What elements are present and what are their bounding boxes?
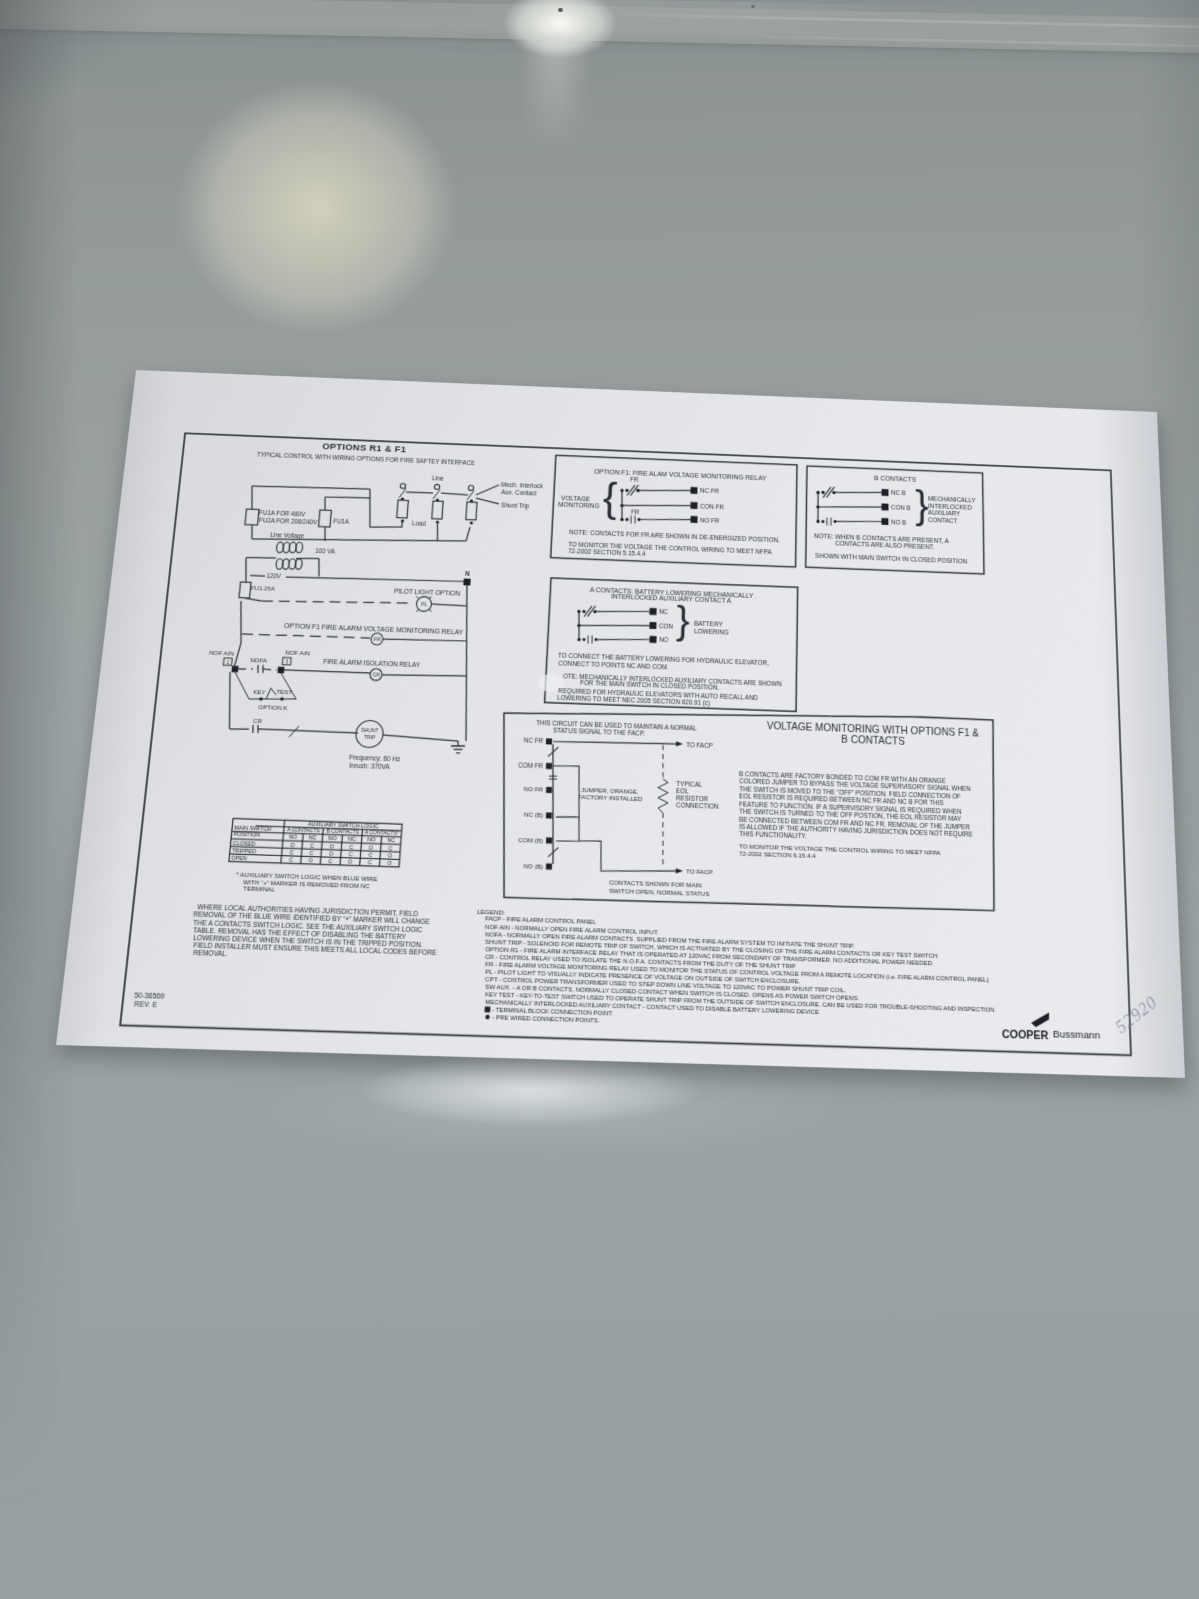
svg-text:NC: NC [387,838,396,845]
svg-text:TRIPPED: TRIPPED [232,848,257,856]
svg-text:CON: CON [659,624,673,631]
svg-text:CONNECTION: CONNECTION [676,803,719,811]
svg-text:FU1A: FU1A [333,519,349,526]
svg-text:COM (B): COM (B) [518,837,543,845]
svg-text:Bussmann: Bussmann [1053,1028,1101,1041]
svg-text:TEST: TEST [276,690,293,697]
svg-text:NOFA: NOFA [250,658,268,665]
svg-text:A CONTACTS*: A CONTACTS* [365,830,400,837]
svg-text:O: O [348,859,353,866]
svg-text:O: O [329,851,334,858]
svg-text:PL: PL [421,602,428,608]
svg-text:Line: Line [432,476,444,483]
svg-text:O: O [308,858,313,865]
svg-text:NO FR: NO FR [523,787,543,794]
svg-text:NOF AIN: NOF AIN [285,651,310,658]
svg-text:CONTACT: CONTACT [928,518,958,525]
svg-text:REMOVAL.: REMOVAL. [193,950,229,958]
svg-text:POSITION: POSITION [233,832,261,840]
svg-text:TERMINAL: TERMINAL [243,886,275,894]
svg-text:EOL: EOL [676,789,689,796]
svg-text:SHUNT: SHUNT [361,727,379,733]
svg-text:REV. E: REV. E [134,1001,158,1010]
svg-text:CON B: CON B [891,505,911,512]
svg-text:NO: NO [289,835,298,842]
svg-text:LEGEND:: LEGEND: [477,909,506,917]
svg-text:}: } [676,598,691,643]
svg-text:O: O [387,860,392,867]
svg-text:TO FACP: TO FACP [686,870,713,878]
svg-text:CLOSED: CLOSED [232,840,256,848]
svg-text:NOF AIN: NOF AIN [209,651,234,658]
svg-text:FR: FR [373,637,381,644]
svg-text:NC (B): NC (B) [524,813,544,820]
svg-text:NO FR: NO FR [700,518,719,525]
svg-text:NO: NO [328,836,337,843]
svg-text:NC: NC [308,835,317,842]
svg-text:NC: NC [348,837,357,844]
svg-text:N: N [465,572,470,578]
svg-text:NO (B): NO (B) [523,863,543,870]
svg-text:NC B: NC B [891,491,906,498]
svg-text:}: } [915,484,929,528]
svg-text:CR: CR [253,719,263,726]
svg-text:OPTION K: OPTION K [258,705,288,713]
svg-text:FR: FR [630,478,639,484]
svg-text:NO B: NO B [891,520,906,527]
svg-text:Load: Load [412,521,426,528]
svg-text:COM FR: COM FR [518,763,543,770]
svg-text:O: O [329,843,334,850]
svg-text:O: O [388,853,393,860]
svg-text:NC FR: NC FR [524,739,544,746]
svg-text:B CONTACTS: B CONTACTS [326,828,359,835]
svg-text:120V: 120V [266,574,281,581]
svg-text:{: { [602,476,618,521]
svg-text:100 VA: 100 VA [315,549,336,556]
svg-text:VOLTAGE: VOLTAGE [561,496,590,503]
svg-text:NC: NC [659,610,668,617]
svg-text:NO: NO [367,837,376,844]
svg-text:LOWERING: LOWERING [694,629,729,637]
svg-text:FR: FR [631,510,639,516]
svg-text:NO: NO [659,638,669,645]
svg-text:CON FR: CON FR [700,504,725,511]
svg-text:NC FR: NC FR [700,489,720,496]
svg-text:Shunt Trip: Shunt Trip [501,503,530,510]
svg-text:Inrush: 370VA: Inrush: 370VA [349,764,390,772]
svg-text:O: O [368,845,373,852]
svg-text:OPEN: OPEN [231,855,248,862]
svg-text:O: O [290,842,295,849]
svg-text:CR: CR [372,672,381,679]
svg-text:TRIP: TRIP [364,734,376,740]
svg-text:FU1.25A: FU1.25A [250,586,275,593]
svg-text:A CONTACTS: A CONTACTS [287,827,320,834]
svg-text:B CONTACTS: B CONTACTS [841,734,905,747]
svg-text:TO FACP: TO FACP [686,743,713,750]
svg-text:COOPER: COOPER [1002,1028,1049,1042]
svg-text:KEY: KEY [253,690,266,697]
